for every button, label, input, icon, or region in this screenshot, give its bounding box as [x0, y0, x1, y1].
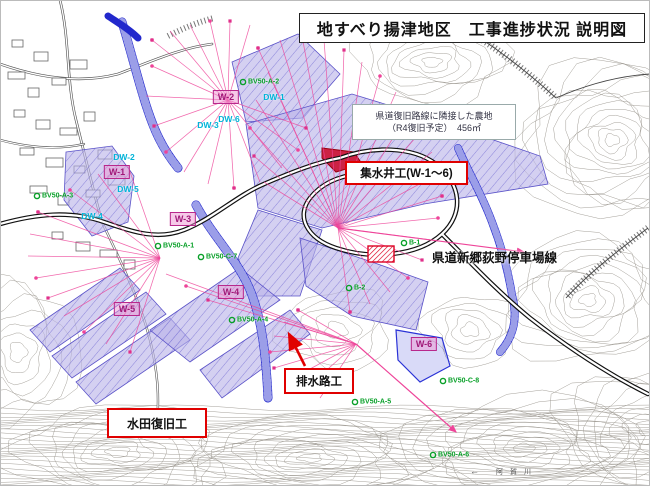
- building-footprint: [52, 232, 63, 239]
- building-footprint: [14, 110, 25, 117]
- building-footprint: [28, 88, 39, 97]
- borehole-point: [352, 399, 357, 404]
- borehole-point: [440, 378, 445, 383]
- paddy-field-polygons: [30, 34, 548, 404]
- building-footprint: [36, 120, 50, 129]
- borehole-point: [34, 193, 39, 198]
- building-footprint: [100, 250, 117, 257]
- building-footprint: [20, 148, 34, 155]
- building-footprint: [60, 128, 77, 135]
- building-footprint: [34, 52, 48, 61]
- progress-map-page: 地すべり揚津地区 工事進捗状況 説明図 県道復旧路線に隣接した農地 （R4復旧予…: [0, 0, 650, 486]
- building-footprint: [30, 186, 47, 193]
- borehole-point: [401, 240, 406, 245]
- building-footprint: [76, 242, 90, 251]
- borehole-point: [198, 254, 203, 259]
- map-canvas: [0, 0, 650, 486]
- collection-well-construction-marker: [368, 246, 394, 262]
- building-footprint: [84, 112, 95, 121]
- building-footprint: [52, 78, 66, 85]
- building-footprint: [70, 60, 87, 69]
- building-footprint: [8, 72, 25, 79]
- building-footprint: [46, 158, 63, 167]
- building-footprint: [12, 40, 23, 47]
